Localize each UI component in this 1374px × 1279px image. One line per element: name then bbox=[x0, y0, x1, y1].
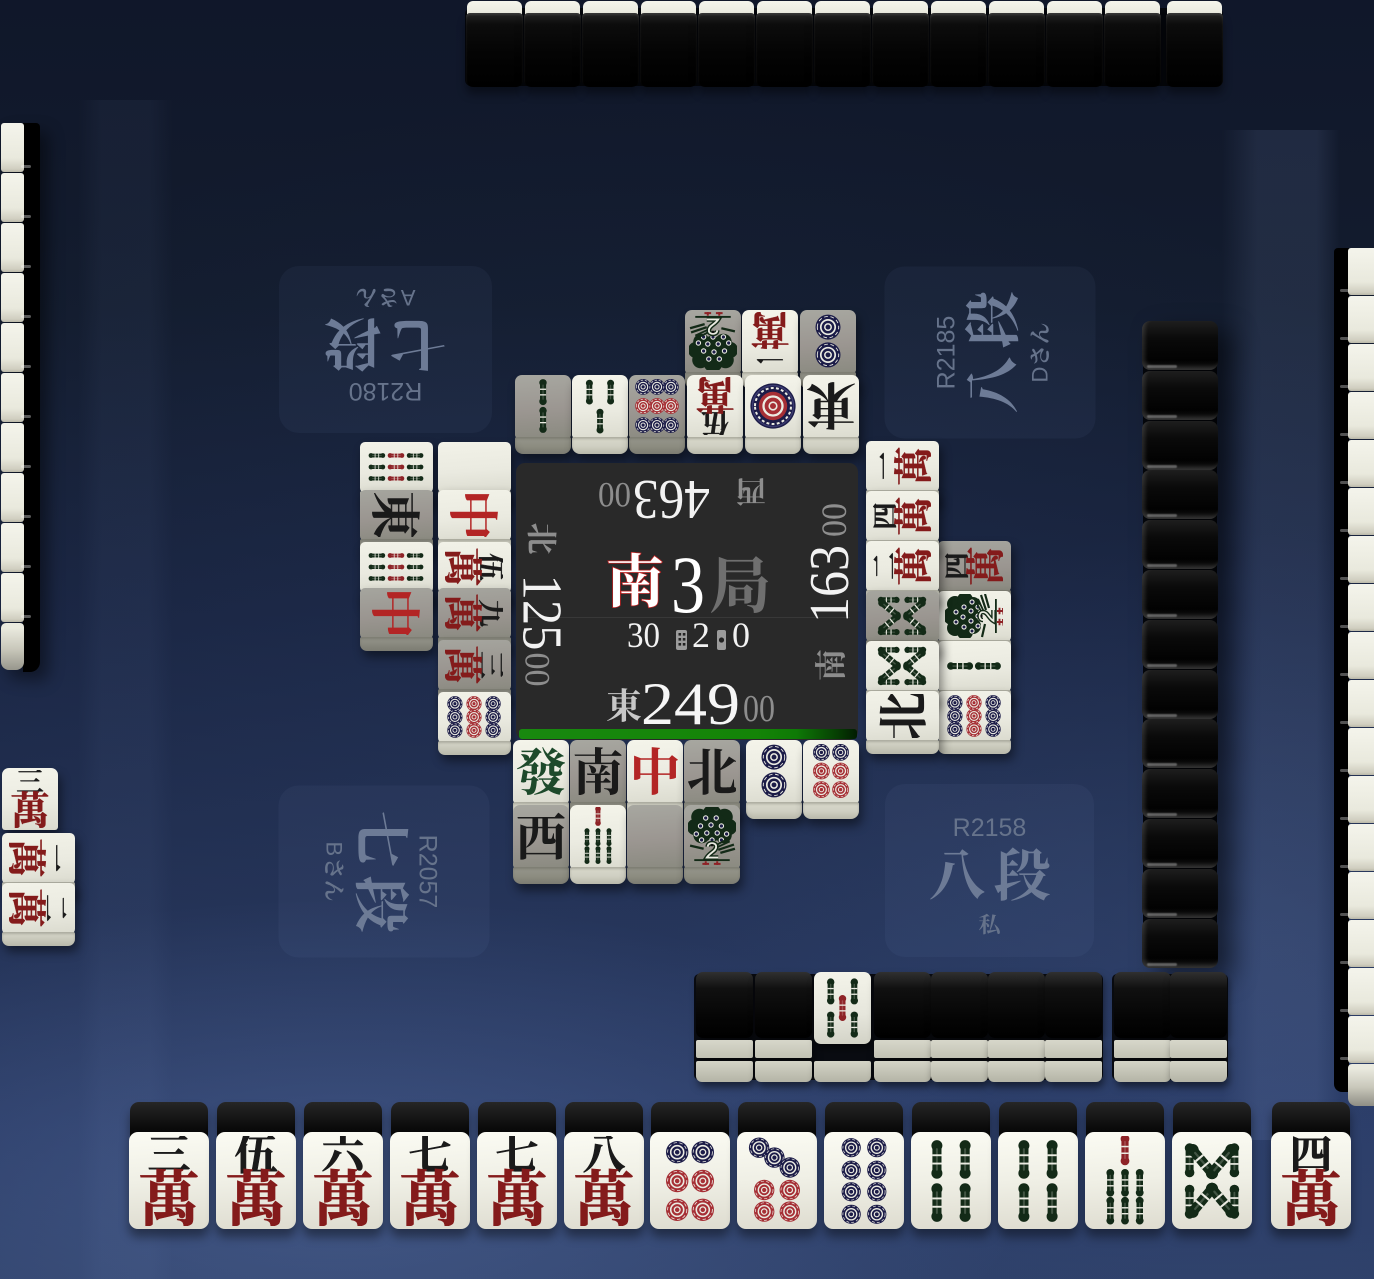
svg-text:463: 463 bbox=[633, 468, 710, 530]
svg-text:00: 00 bbox=[814, 503, 854, 537]
svg-text:30: 30 bbox=[627, 615, 660, 655]
svg-text:2: 2 bbox=[692, 615, 710, 655]
svg-text:D: D bbox=[1028, 367, 1053, 383]
svg-text:00: 00 bbox=[518, 653, 558, 687]
svg-text:B: B bbox=[322, 842, 347, 857]
svg-text:249: 249 bbox=[641, 671, 740, 737]
svg-text:00: 00 bbox=[743, 688, 775, 730]
svg-text:R2185: R2185 bbox=[933, 316, 961, 390]
svg-text:00: 00 bbox=[598, 475, 631, 515]
svg-text:R2158: R2158 bbox=[953, 814, 1027, 842]
svg-text:163: 163 bbox=[799, 545, 858, 623]
svg-text:R2057: R2057 bbox=[414, 835, 442, 909]
svg-text:A: A bbox=[401, 285, 416, 310]
svg-text:R2180: R2180 bbox=[349, 377, 423, 405]
svg-text:0: 0 bbox=[732, 615, 750, 655]
svg-text:125: 125 bbox=[516, 575, 573, 651]
